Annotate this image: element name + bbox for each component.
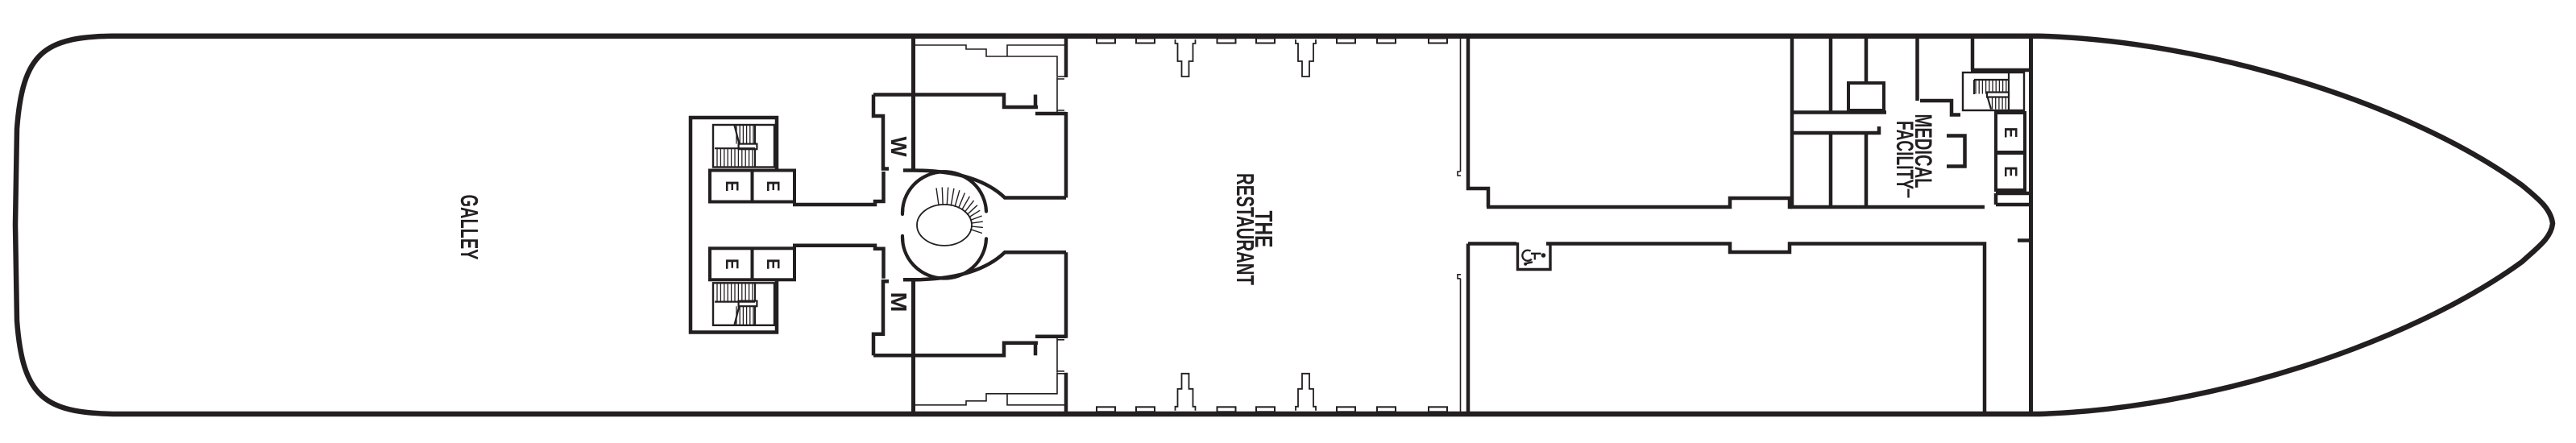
svg-text:RESTAURANT: RESTAURANT bbox=[1231, 173, 1259, 285]
svg-text:GALLEY: GALLEY bbox=[455, 195, 483, 260]
svg-text:E: E bbox=[763, 259, 783, 270]
svg-text:E: E bbox=[2001, 166, 2021, 177]
svg-text:E: E bbox=[2001, 127, 2021, 139]
svg-text:W: W bbox=[886, 137, 911, 158]
svg-text:E: E bbox=[722, 180, 742, 192]
svg-text:M: M bbox=[886, 292, 911, 313]
svg-text:E: E bbox=[763, 180, 783, 192]
svg-text:FACILITY: FACILITY bbox=[1891, 121, 1918, 189]
svg-text:E: E bbox=[722, 259, 742, 270]
